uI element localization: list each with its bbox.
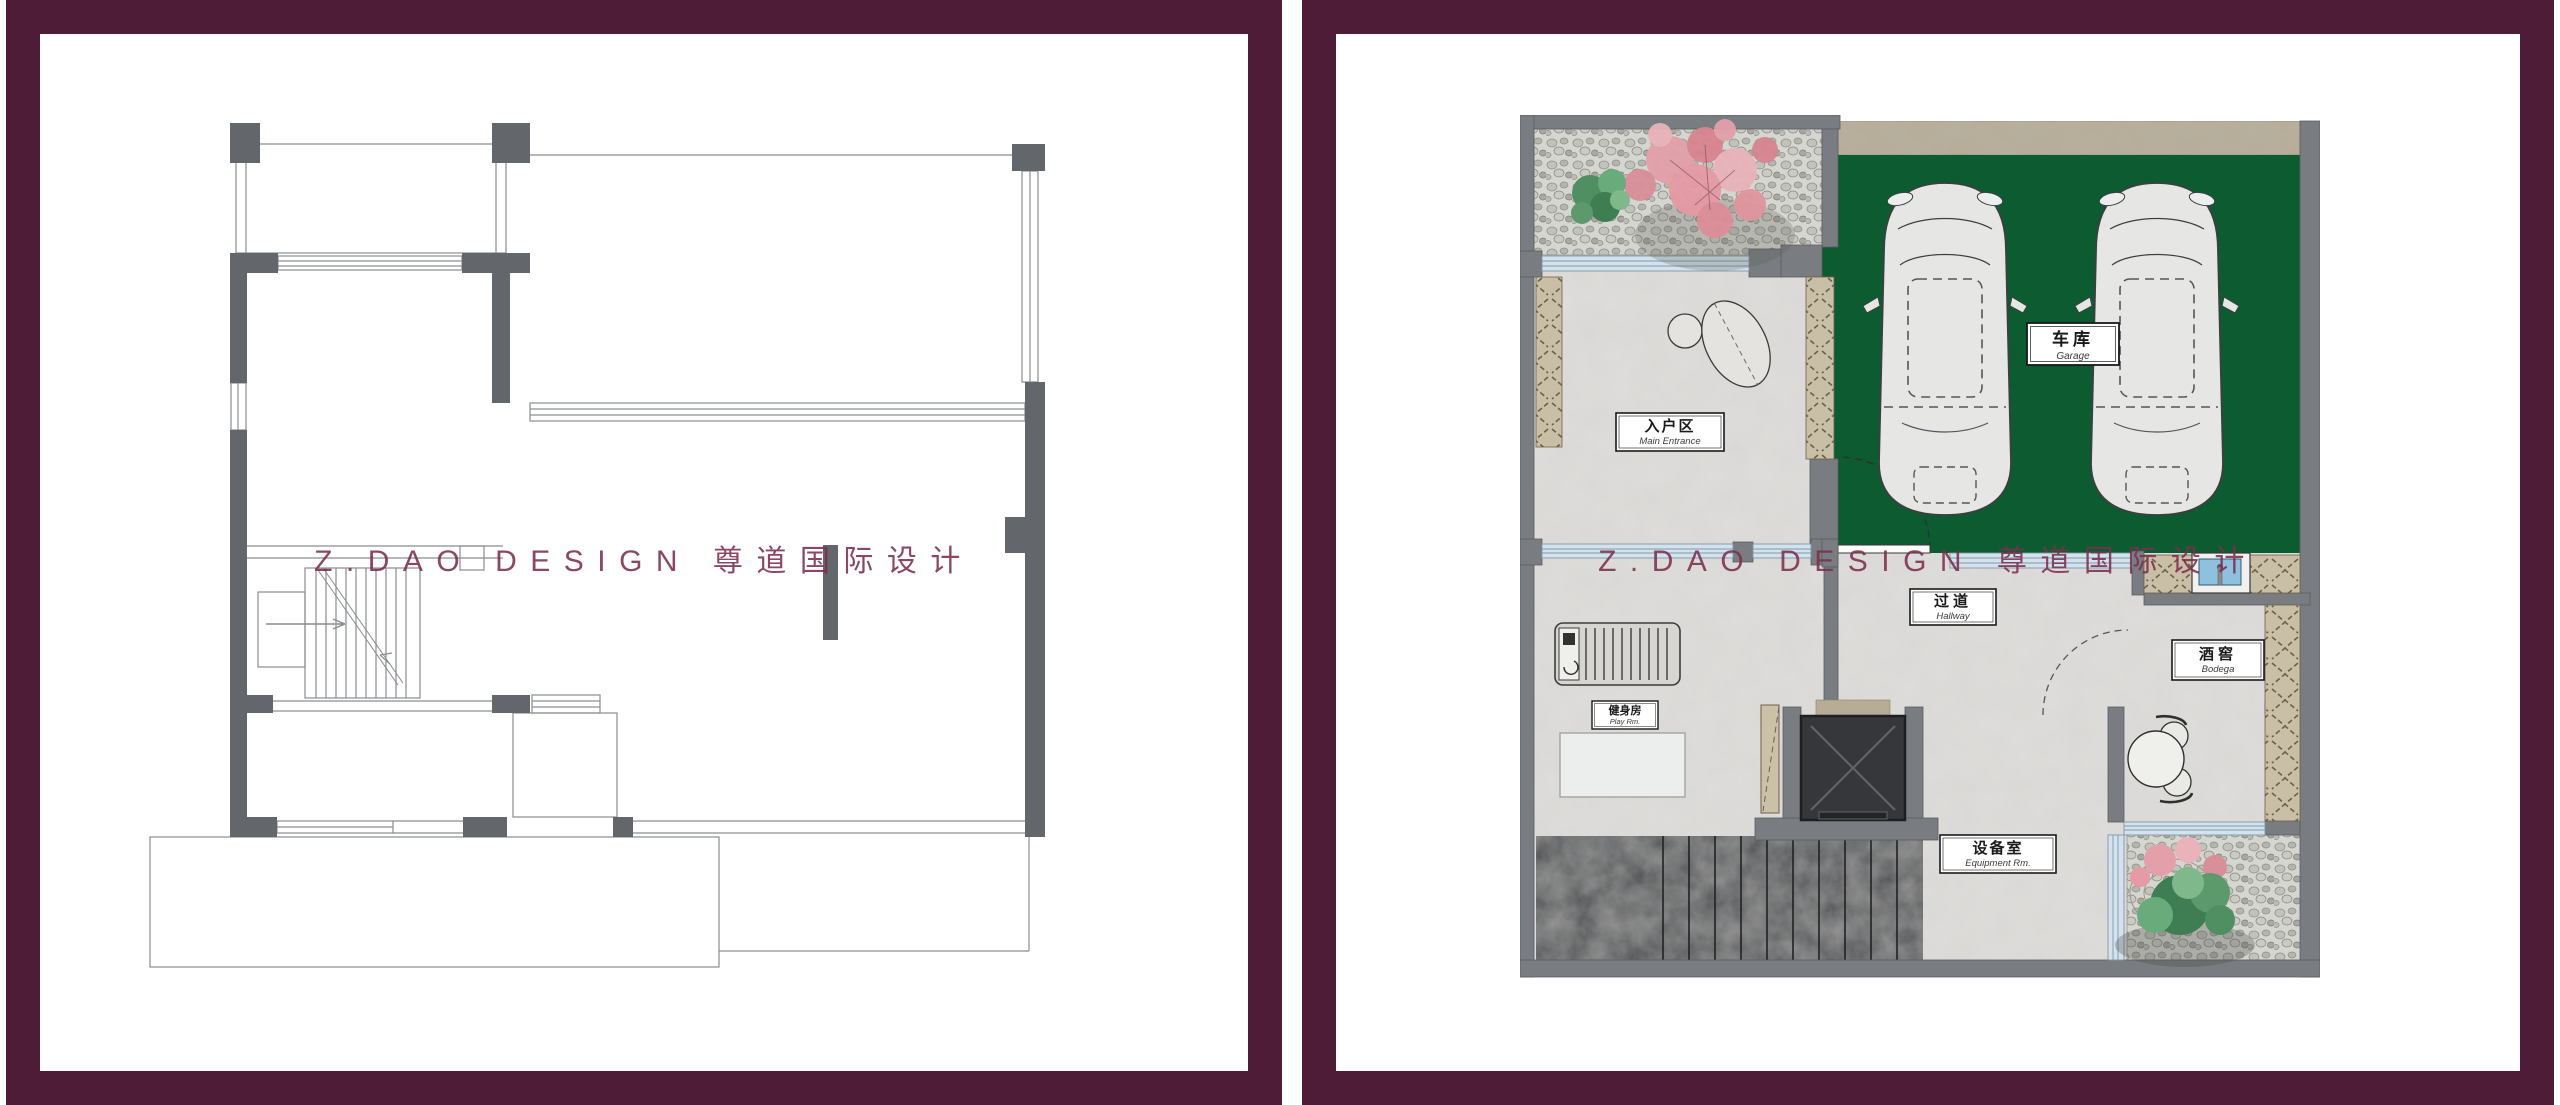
gym-mat: [1560, 733, 1685, 797]
svg-text:设备室: 设备室: [1972, 839, 2023, 857]
driveway-threshold: [1838, 121, 2300, 155]
left-plan-panel: Z.DAO DESIGN 尊道国际设计: [6, 0, 1282, 1105]
blank-floor-plan: [140, 115, 1130, 995]
right-plan-panel: Z.DAO DESIGN 尊道国际设计: [1302, 0, 2554, 1105]
rendered-floor-plan: 车库 Garage 入户区 Main Entrance 过道 Hallway 酒…: [1520, 115, 2320, 985]
elevator: [1801, 700, 1905, 820]
svg-text:Garage: Garage: [2056, 351, 2090, 362]
walls: [230, 123, 1045, 837]
staircase: [258, 568, 420, 698]
svg-text:Equipment Rm.: Equipment Rm.: [1965, 858, 2030, 869]
svg-text:Hallway: Hallway: [1936, 611, 1971, 622]
window-column-right: [1022, 171, 1038, 382]
terrace-outline: [150, 837, 1029, 967]
svg-text:车库: 车库: [2052, 329, 2094, 349]
svg-text:Bodega: Bodega: [2202, 664, 2235, 675]
window-band: [530, 403, 1025, 421]
sink: [2192, 553, 2250, 593]
label-garage: 车库 Garage: [2027, 323, 2119, 365]
car-left: [1863, 183, 2027, 515]
dark-marble-steps: [1536, 836, 1923, 960]
label-equipment-room: 设备室 Equipment Rm.: [1940, 835, 2056, 873]
window-bottom: [277, 821, 1025, 833]
interior-partition: [230, 546, 503, 570]
window-left: [231, 383, 246, 430]
label-main-entrance: 入户区 Main Entrance: [1616, 413, 1724, 451]
treadmill: [1555, 623, 1680, 685]
svg-text:Play Rm.: Play Rm.: [1610, 717, 1640, 726]
svg-text:酒窖: 酒窖: [2199, 645, 2237, 663]
label-gym: 健身房 Play Rm.: [1592, 701, 1658, 729]
svg-text:Main Entrance: Main Entrance: [1639, 436, 1700, 447]
svg-text:健身房: 健身房: [1609, 703, 1642, 717]
svg-text:过道: 过道: [1934, 592, 1972, 610]
label-bodega: 酒窖 Bodega: [2172, 640, 2264, 680]
window-top: [278, 256, 462, 270]
label-hallway: 过道 Hallway: [1910, 589, 1996, 625]
balcony-outline: [236, 144, 1012, 253]
svg-text:入户区: 入户区: [1644, 417, 1695, 435]
small-room: [513, 695, 617, 817]
